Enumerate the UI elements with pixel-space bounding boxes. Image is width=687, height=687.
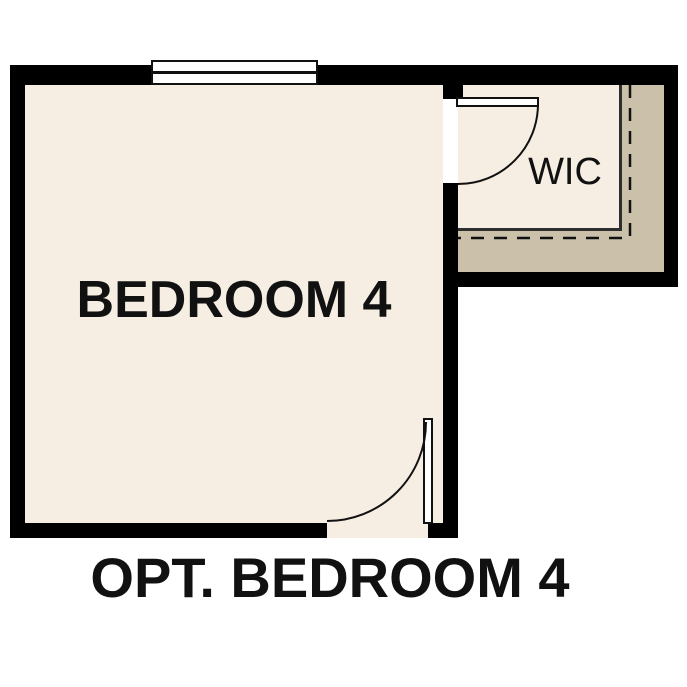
entry-door-leaf bbox=[423, 418, 433, 524]
wic-label: WIC bbox=[500, 150, 630, 194]
window-icon bbox=[151, 60, 318, 85]
floor-plan-canvas: BEDROOM 4 WIC OPT. BEDROOM 4 bbox=[0, 0, 687, 687]
bedroom-label: BEDROOM 4 bbox=[25, 270, 443, 330]
entry-door-opening bbox=[327, 523, 428, 538]
wall-left bbox=[10, 65, 25, 538]
wall-partition bbox=[443, 183, 458, 538]
wall-door-connector bbox=[428, 523, 458, 538]
wall-wic-bottom bbox=[443, 272, 678, 287]
window-divider-line bbox=[153, 71, 316, 74]
plan-caption: OPT. BEDROOM 4 bbox=[0, 549, 660, 607]
wall-top bbox=[10, 65, 678, 85]
wall-bottom-bedroom bbox=[10, 523, 327, 538]
wic-door-leaf bbox=[456, 97, 539, 107]
wall-right bbox=[664, 85, 678, 272]
